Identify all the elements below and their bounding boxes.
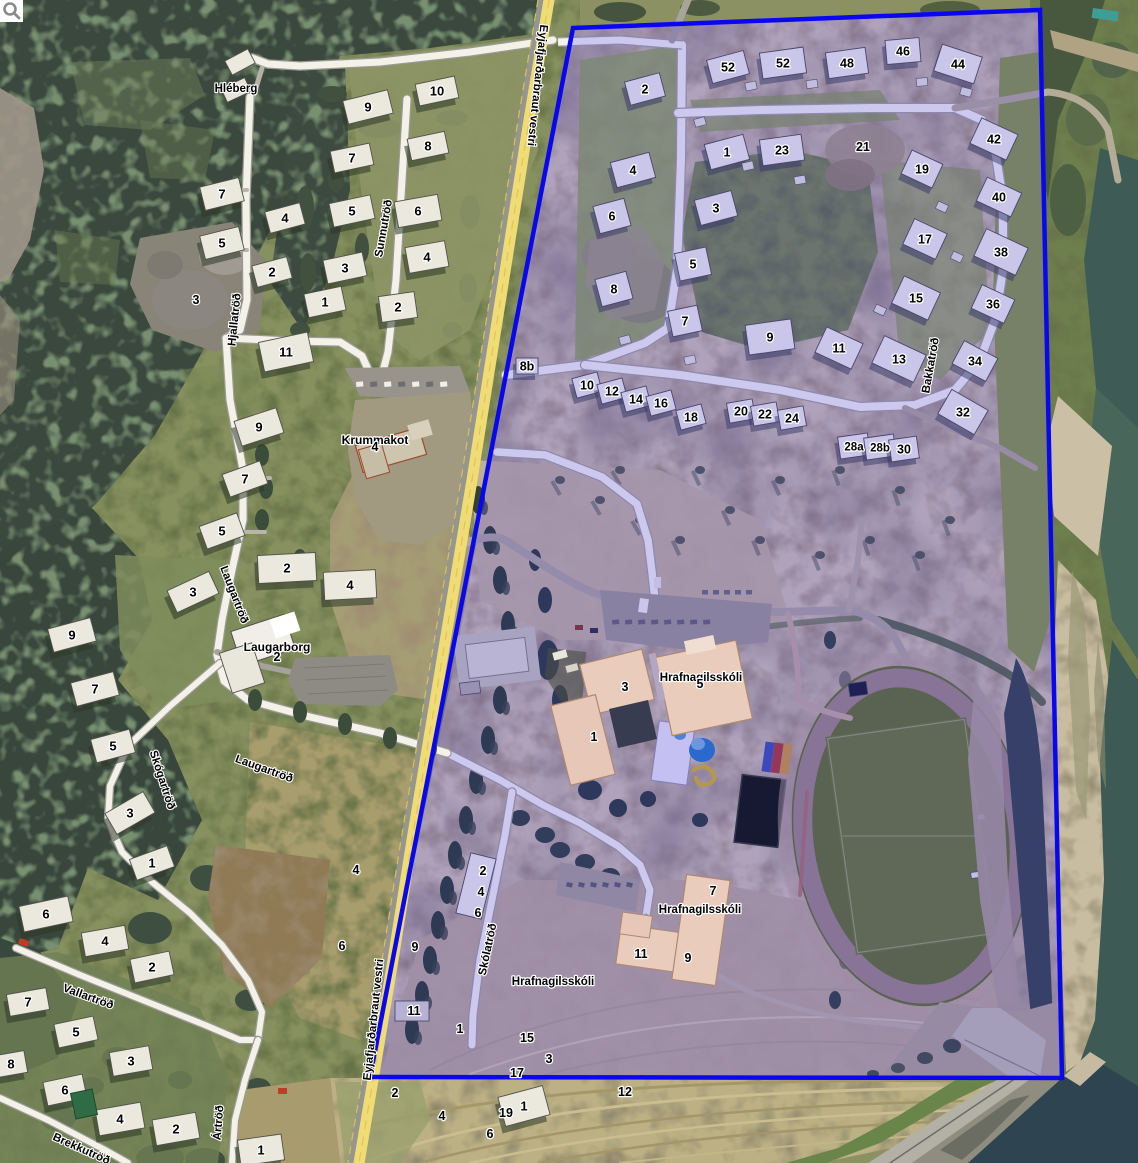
svg-text:28a: 28a xyxy=(844,442,864,454)
svg-text:42: 42 xyxy=(987,133,1001,147)
svg-text:6: 6 xyxy=(414,204,421,219)
svg-text:52: 52 xyxy=(776,57,790,71)
svg-text:4: 4 xyxy=(101,934,109,949)
svg-text:12: 12 xyxy=(605,385,619,399)
svg-text:2: 2 xyxy=(394,300,401,315)
svg-text:2: 2 xyxy=(268,265,275,280)
svg-text:1: 1 xyxy=(457,1022,464,1036)
svg-text:4: 4 xyxy=(630,164,637,178)
svg-text:48: 48 xyxy=(840,57,854,71)
svg-text:9: 9 xyxy=(68,628,75,643)
svg-text:6: 6 xyxy=(609,210,616,224)
svg-text:7: 7 xyxy=(710,884,717,898)
svg-text:2: 2 xyxy=(392,1086,399,1100)
svg-text:19: 19 xyxy=(915,163,929,177)
svg-text:18: 18 xyxy=(684,411,698,425)
svg-text:2: 2 xyxy=(283,561,290,576)
svg-text:3: 3 xyxy=(341,261,348,276)
svg-text:3: 3 xyxy=(126,806,133,821)
svg-text:15: 15 xyxy=(909,292,923,306)
svg-text:9: 9 xyxy=(255,420,262,435)
svg-text:34: 34 xyxy=(968,355,982,369)
svg-text:2: 2 xyxy=(172,1122,179,1137)
svg-text:9: 9 xyxy=(364,100,371,115)
svg-text:14: 14 xyxy=(629,393,643,407)
svg-text:30: 30 xyxy=(897,443,911,457)
svg-text:5: 5 xyxy=(348,204,355,219)
svg-text:4: 4 xyxy=(346,578,354,593)
svg-text:3: 3 xyxy=(127,1054,134,1069)
svg-text:1: 1 xyxy=(520,1099,527,1114)
svg-text:2: 2 xyxy=(642,83,649,97)
svg-text:2: 2 xyxy=(148,960,155,975)
svg-text:36: 36 xyxy=(986,298,1000,312)
svg-text:7: 7 xyxy=(241,472,248,487)
svg-text:8: 8 xyxy=(611,283,618,297)
svg-text:3: 3 xyxy=(546,1052,553,1066)
svg-text:4: 4 xyxy=(439,1109,446,1123)
svg-text:13: 13 xyxy=(892,353,906,367)
svg-text:5: 5 xyxy=(109,739,116,754)
svg-text:1: 1 xyxy=(724,146,731,160)
svg-text:11: 11 xyxy=(832,342,845,356)
svg-text:10: 10 xyxy=(430,84,444,99)
svg-text:3: 3 xyxy=(189,585,196,600)
svg-text:2: 2 xyxy=(480,864,487,878)
svg-text:17: 17 xyxy=(510,1066,524,1080)
svg-text:1: 1 xyxy=(321,295,328,310)
svg-text:1: 1 xyxy=(257,1143,264,1158)
svg-text:28b: 28b xyxy=(870,443,890,455)
svg-text:24: 24 xyxy=(785,412,799,426)
svg-text:6: 6 xyxy=(61,1083,68,1098)
svg-text:Hléberg: Hléberg xyxy=(215,83,258,95)
svg-text:15: 15 xyxy=(520,1031,534,1045)
svg-text:5: 5 xyxy=(72,1025,79,1040)
svg-text:20: 20 xyxy=(734,405,748,419)
svg-text:8b: 8b xyxy=(520,360,535,374)
svg-text:12: 12 xyxy=(618,1085,632,1099)
svg-text:17: 17 xyxy=(918,233,932,247)
svg-text:6: 6 xyxy=(339,939,346,953)
svg-text:5: 5 xyxy=(697,677,704,691)
svg-text:7: 7 xyxy=(348,151,355,166)
svg-text:3: 3 xyxy=(622,680,629,694)
svg-text:21: 21 xyxy=(856,140,870,154)
svg-text:Hrafnagilsskóli: Hrafnagilsskóli xyxy=(512,976,594,988)
svg-text:40: 40 xyxy=(992,191,1006,205)
svg-text:11: 11 xyxy=(279,345,293,360)
svg-text:5: 5 xyxy=(218,524,225,539)
svg-text:4: 4 xyxy=(423,250,431,265)
svg-text:7: 7 xyxy=(91,682,98,697)
svg-text:19: 19 xyxy=(499,1106,513,1120)
svg-text:6: 6 xyxy=(475,906,482,920)
svg-text:11: 11 xyxy=(634,947,647,961)
svg-text:8: 8 xyxy=(7,1057,14,1072)
svg-text:9: 9 xyxy=(412,940,419,954)
svg-text:7: 7 xyxy=(218,187,225,202)
svg-text:7: 7 xyxy=(682,315,689,329)
svg-text:5: 5 xyxy=(690,258,697,272)
svg-text:8: 8 xyxy=(424,139,431,154)
svg-text:10: 10 xyxy=(580,379,594,393)
svg-text:11: 11 xyxy=(407,1004,420,1018)
svg-text:2: 2 xyxy=(274,650,281,664)
svg-text:16: 16 xyxy=(654,397,668,411)
svg-text:46: 46 xyxy=(896,45,910,59)
svg-text:23: 23 xyxy=(775,144,789,158)
svg-text:3: 3 xyxy=(193,293,200,307)
svg-text:1: 1 xyxy=(148,856,155,871)
svg-text:32: 32 xyxy=(956,406,970,420)
svg-text:22: 22 xyxy=(758,408,772,422)
svg-text:6: 6 xyxy=(42,907,49,922)
svg-text:4: 4 xyxy=(478,885,485,899)
svg-text:9: 9 xyxy=(685,951,692,965)
svg-text:4: 4 xyxy=(281,211,289,226)
svg-text:9: 9 xyxy=(767,331,774,345)
svg-text:Hrafnagilsskóli: Hrafnagilsskóli xyxy=(659,904,741,916)
svg-text:4: 4 xyxy=(353,863,360,877)
svg-text:4: 4 xyxy=(372,440,379,454)
svg-text:7: 7 xyxy=(24,995,31,1010)
svg-text:38: 38 xyxy=(994,246,1008,260)
svg-text:5: 5 xyxy=(218,236,225,251)
svg-text:44: 44 xyxy=(951,58,965,72)
svg-text:52: 52 xyxy=(721,61,735,75)
svg-text:6: 6 xyxy=(487,1127,494,1141)
svg-text:1: 1 xyxy=(591,730,598,744)
svg-text:4: 4 xyxy=(116,1112,124,1127)
svg-text:3: 3 xyxy=(713,202,720,216)
